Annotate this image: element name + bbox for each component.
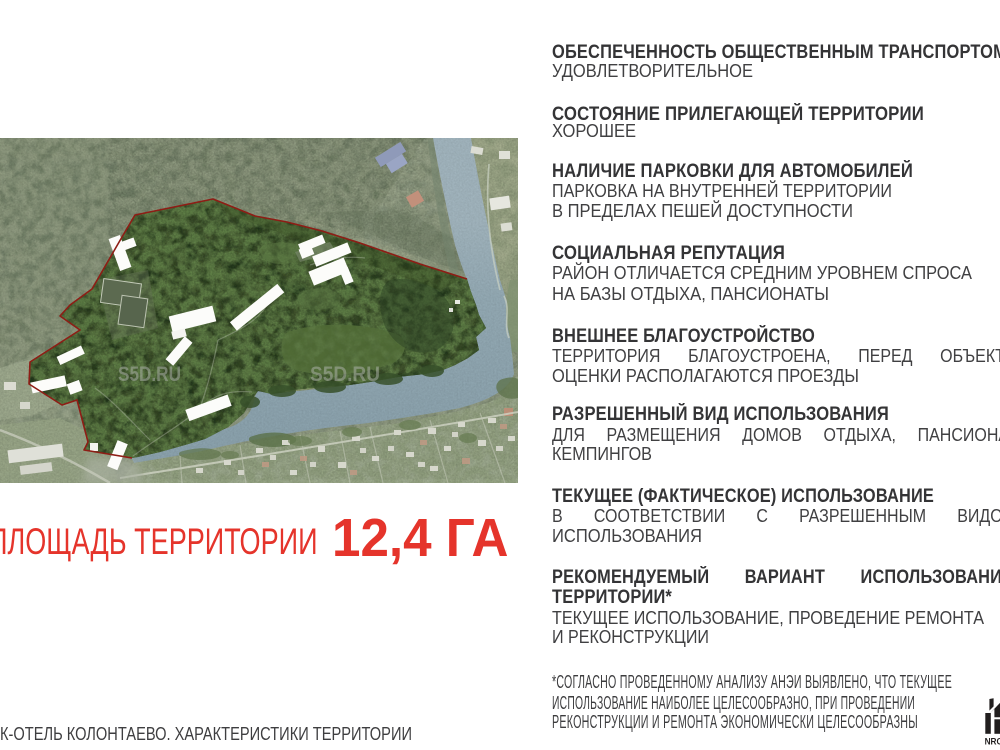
svg-text:S5D.RU: S5D.RU bbox=[310, 363, 380, 386]
svg-text:S5D.RU: S5D.RU bbox=[118, 363, 181, 386]
svg-text:NRC: NRC bbox=[985, 736, 1000, 746]
